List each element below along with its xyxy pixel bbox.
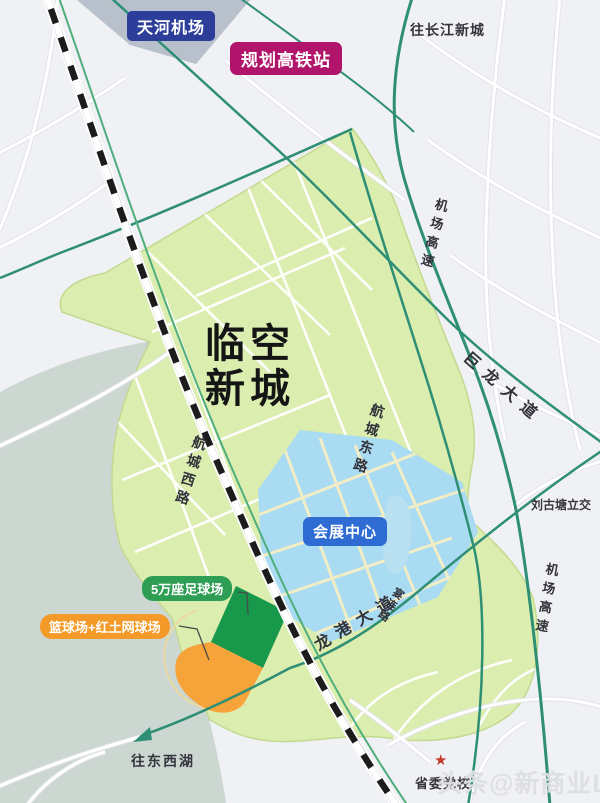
area-title-line2: 新城 xyxy=(205,367,295,412)
stadium-label: 5万座足球场 xyxy=(142,576,232,601)
direction-to-dongxihu: 往东西湖 xyxy=(131,751,195,771)
area-title-line1: 临空 xyxy=(205,322,295,367)
airport-newtown-planning-map: 天河机场 规划高铁站 会展中心 5万座足球场 篮球场+红土网球场 临空 新城 往… xyxy=(0,0,600,803)
liugutang-interchange-label: 刘古塘立交 xyxy=(531,496,591,513)
courts-label: 篮球场+红土网球场 xyxy=(40,614,170,639)
direction-to-changjiang: 往长江新城 xyxy=(410,20,485,40)
airport-label: 天河机场 xyxy=(127,11,215,41)
watermark: 头条@新商业LAB xyxy=(437,764,600,800)
area-title: 临空 新城 xyxy=(205,322,295,412)
convention-center-label: 会展中心 xyxy=(303,517,387,546)
hsr-station-label: 规划高铁站 xyxy=(230,42,342,75)
